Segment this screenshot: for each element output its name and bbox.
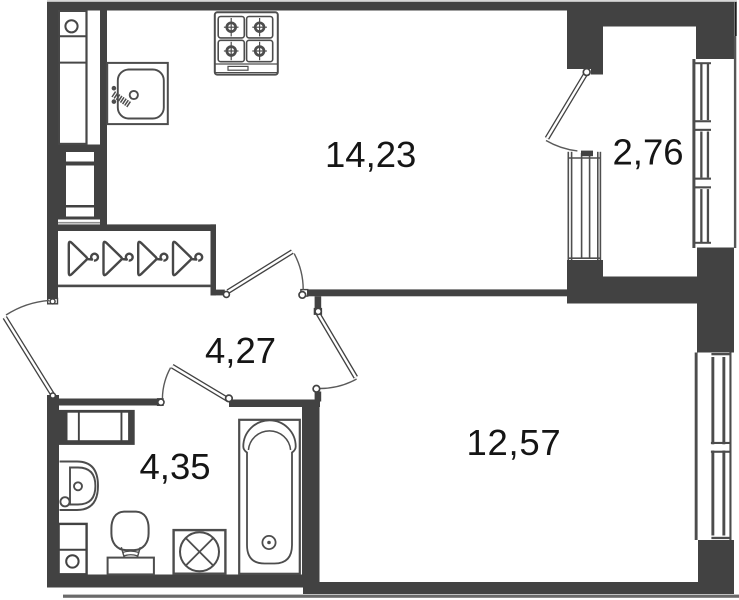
svg-text:14,23: 14,23 xyxy=(325,134,416,175)
svg-text:4,27: 4,27 xyxy=(205,330,276,371)
svg-text:2,76: 2,76 xyxy=(613,132,684,173)
svg-text:4,35: 4,35 xyxy=(140,446,211,487)
svg-text:12,57: 12,57 xyxy=(467,422,562,463)
